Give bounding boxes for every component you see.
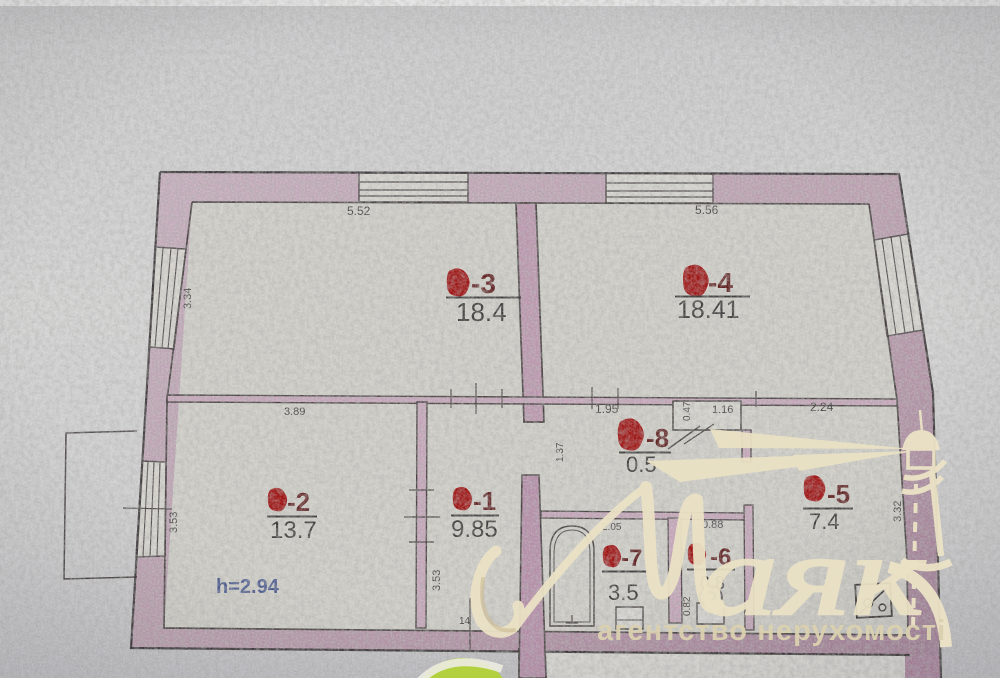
svg-text:агентство нерухомості: агентство нерухомості <box>597 615 946 647</box>
